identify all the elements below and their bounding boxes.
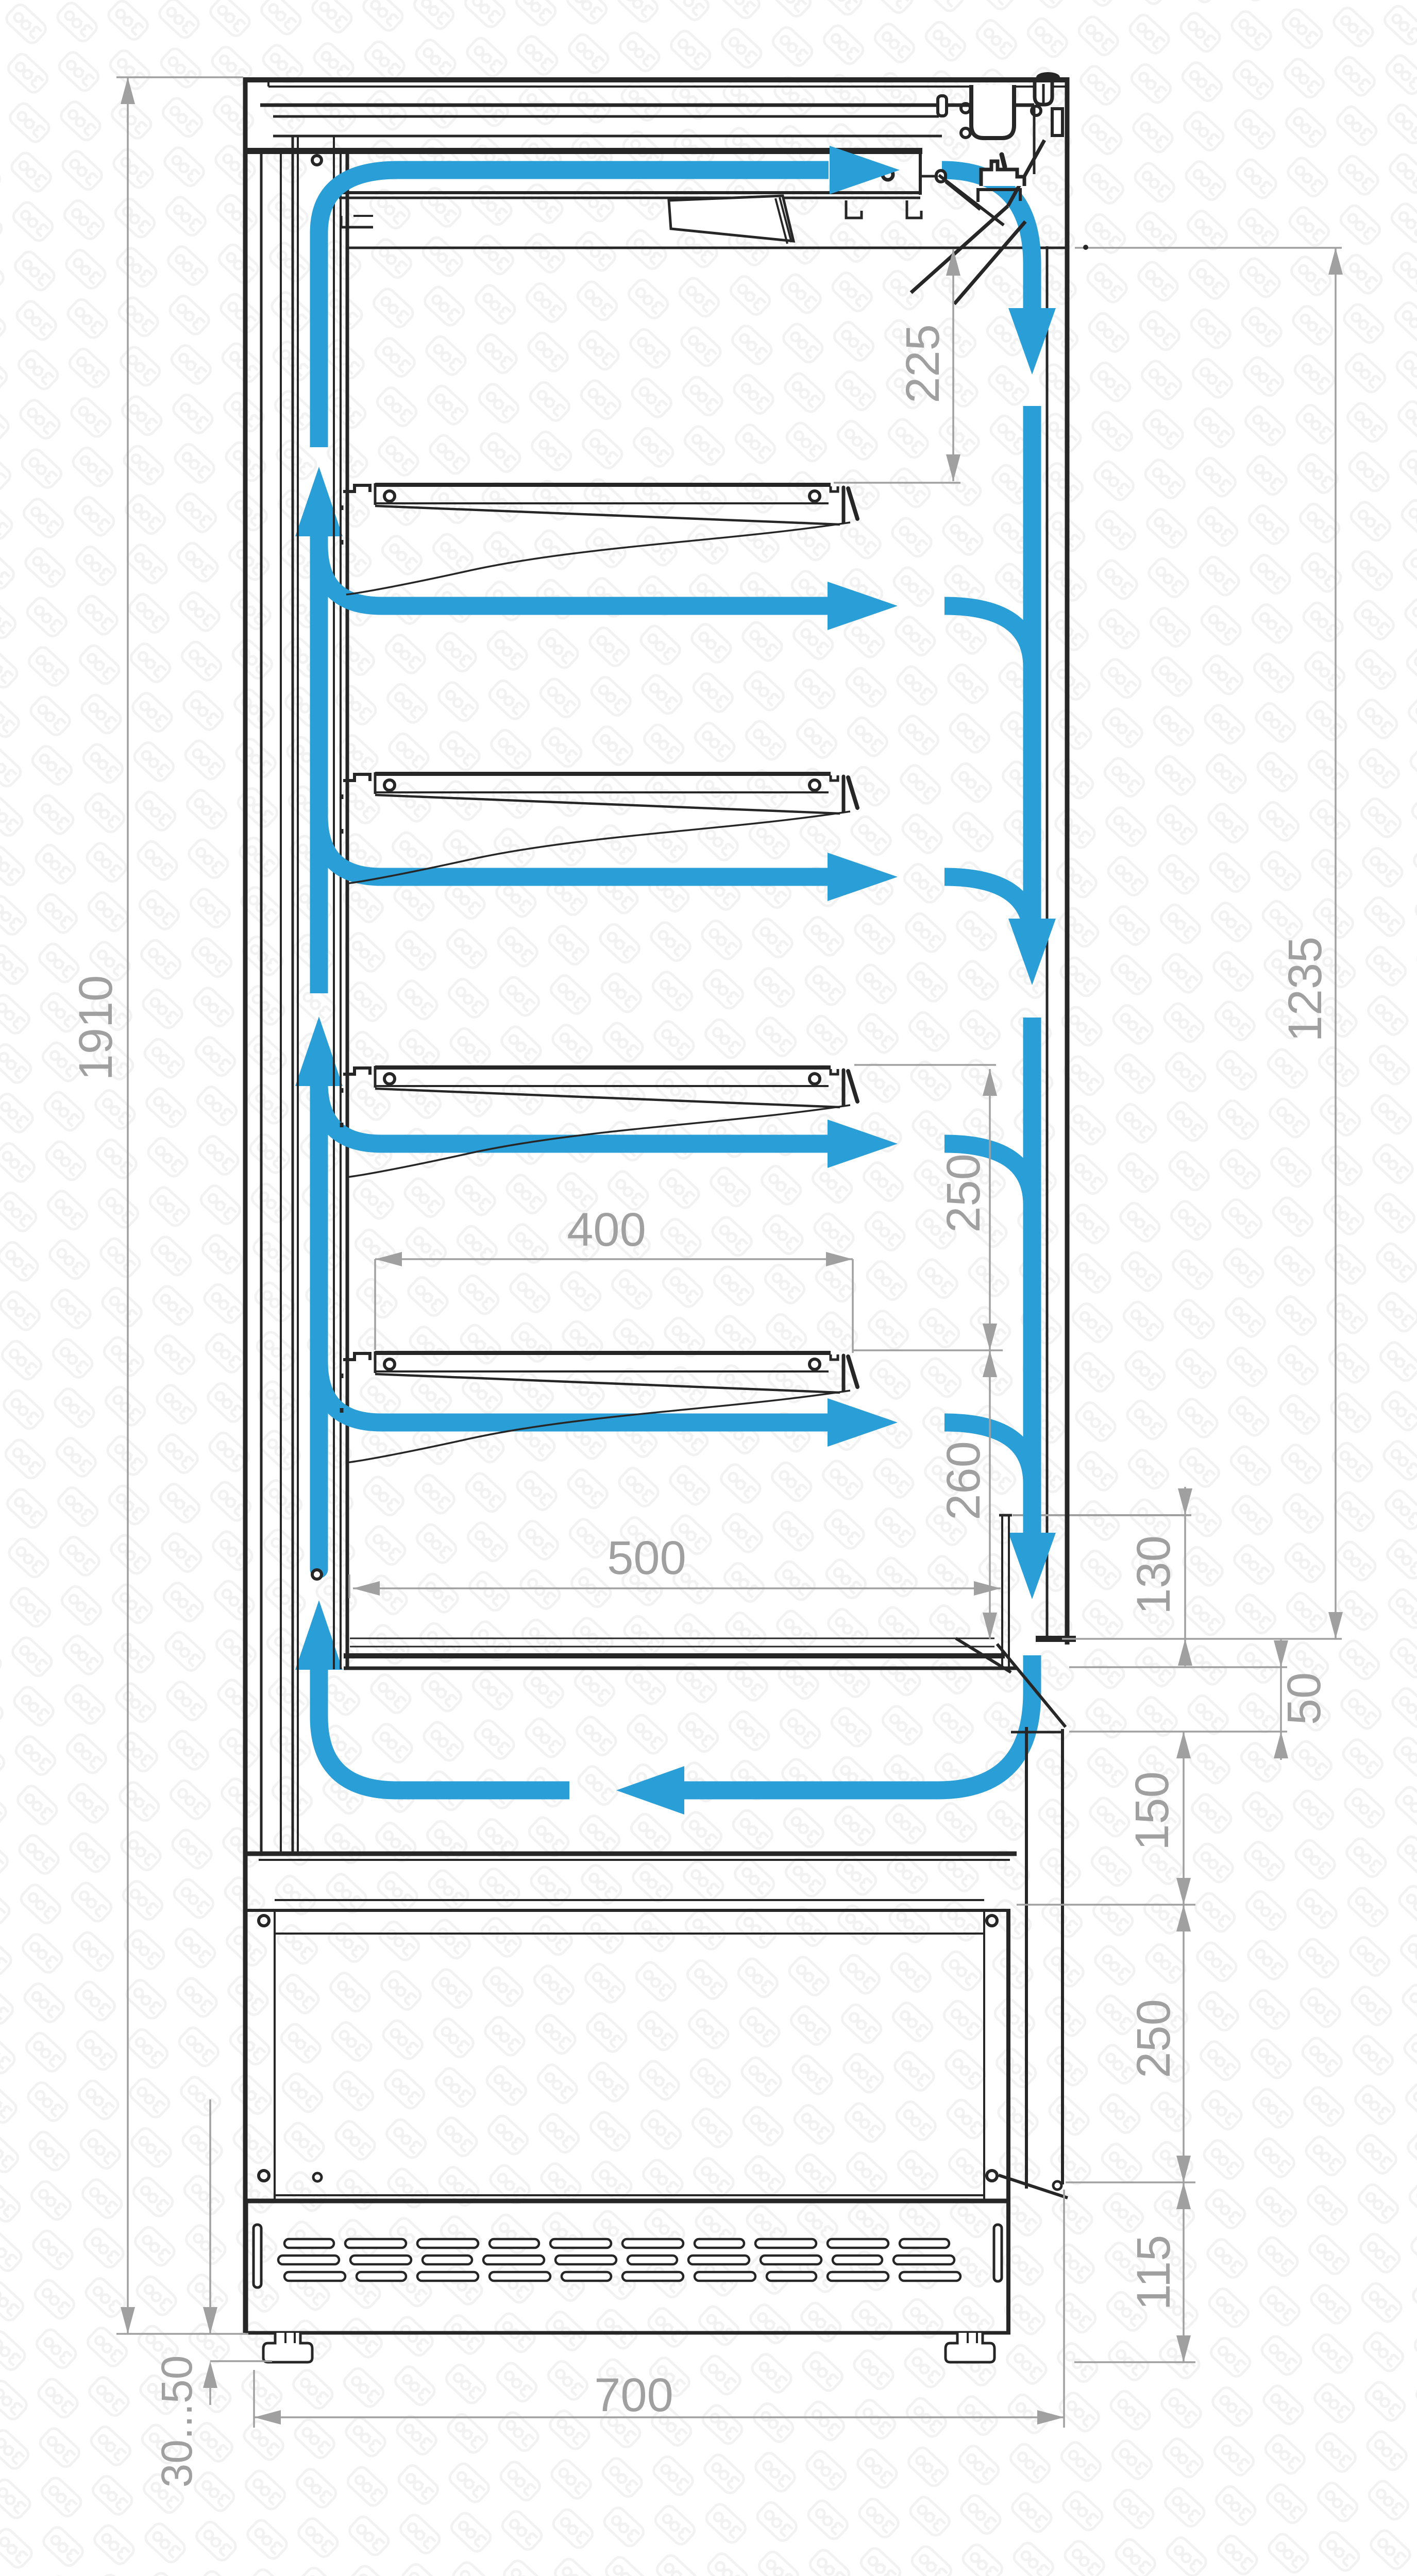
svg-text:250: 250 — [937, 1154, 990, 1233]
svg-text:1910: 1910 — [70, 975, 122, 1081]
svg-text:400: 400 — [567, 1204, 646, 1256]
svg-text:250: 250 — [1127, 1999, 1180, 2078]
svg-text:150: 150 — [1126, 1771, 1178, 1851]
svg-text:30...50: 30...50 — [153, 2355, 201, 2488]
svg-text:260: 260 — [937, 1441, 990, 1520]
svg-text:500: 500 — [607, 1532, 686, 1584]
svg-text:130: 130 — [1127, 1535, 1180, 1615]
svg-text:1235: 1235 — [1279, 937, 1331, 1042]
svg-text:225: 225 — [897, 324, 949, 403]
svg-text:700: 700 — [594, 2369, 673, 2421]
svg-text:50: 50 — [1278, 1672, 1330, 1725]
svg-text:115: 115 — [1127, 2235, 1180, 2311]
